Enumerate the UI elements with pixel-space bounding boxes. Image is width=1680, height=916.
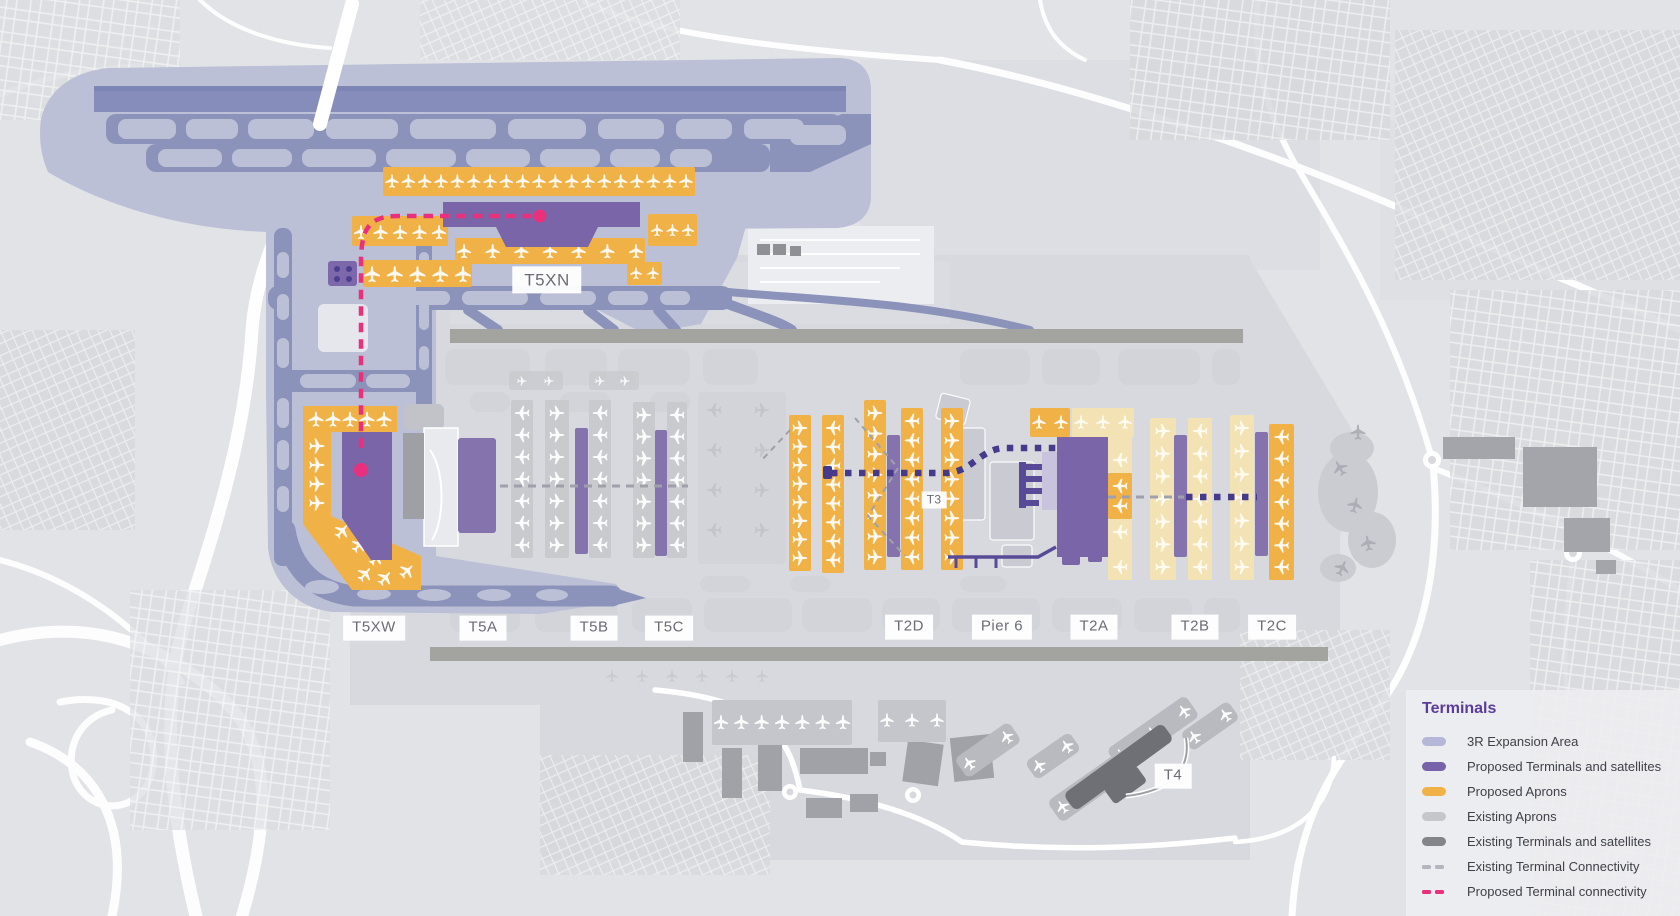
proposed-satellite-t5a bbox=[458, 438, 496, 533]
runway-south bbox=[430, 647, 1328, 661]
proposed-satellite-t2d bbox=[887, 435, 900, 557]
label-t2d: T2D bbox=[885, 615, 933, 640]
heathrow-expansion-map: T5XN T5XW T5A T5B T5C T2D Pier 6 T2A T2B… bbox=[0, 0, 1680, 916]
taxiway-island bbox=[802, 598, 872, 632]
label-t2c: T2C bbox=[1248, 615, 1296, 640]
label-pier6: Pier 6 bbox=[972, 615, 1032, 640]
legend-label: Proposed Terminals and satellites bbox=[1467, 759, 1661, 774]
label-t2a: T2A bbox=[1070, 615, 1117, 640]
proposed-apron bbox=[789, 415, 811, 571]
carpark-block bbox=[328, 261, 357, 286]
legend-label: Existing Aprons bbox=[1467, 809, 1557, 824]
legend-panel: Terminals 3R Expansion Area Proposed Ter… bbox=[1406, 690, 1680, 916]
existing-apron-faint bbox=[698, 392, 786, 564]
legend-title: Terminals bbox=[1422, 700, 1670, 718]
legend-swatch-existing-terminals bbox=[1422, 837, 1446, 846]
proposed-satellite-t5b bbox=[575, 428, 588, 554]
taxiway-island bbox=[700, 576, 750, 592]
legend-swatch-3r-expansion bbox=[1422, 737, 1446, 746]
label-t5b: T5B bbox=[570, 616, 617, 641]
legend-swatch-existing-connectivity bbox=[1422, 862, 1446, 871]
runway-north bbox=[450, 329, 1243, 343]
taxiway-island bbox=[704, 598, 792, 632]
taxiway-island bbox=[703, 349, 758, 385]
runway-3r-edge bbox=[94, 86, 846, 91]
taxiway-island bbox=[470, 392, 510, 412]
label-t5xn: T5XN bbox=[512, 266, 581, 293]
legend-swatch-proposed-connectivity bbox=[1422, 887, 1446, 896]
taxiway-island bbox=[960, 349, 1030, 385]
legend-item-existing-terminals: Existing Terminals and satellites bbox=[1422, 829, 1670, 854]
proposed-apron bbox=[864, 400, 886, 570]
label-t5a: T5A bbox=[459, 616, 506, 641]
proposed-terminal-t2a bbox=[1057, 437, 1108, 557]
legend-item-proposed-connectivity: Proposed Terminal connectivity bbox=[1422, 879, 1670, 904]
legend-swatch-existing-aprons bbox=[1422, 812, 1446, 821]
label-t5c: T5C bbox=[645, 616, 693, 641]
legend-swatch-proposed-terminals bbox=[1422, 762, 1446, 771]
label-t3: T3 bbox=[922, 492, 947, 509]
legend-label: Proposed Terminal connectivity bbox=[1467, 884, 1647, 899]
proposed-satellite-t5c bbox=[655, 430, 667, 556]
legend-label: Existing Terminals and satellites bbox=[1467, 834, 1651, 849]
taxiway-island bbox=[1212, 349, 1240, 385]
legend-label: Proposed Aprons bbox=[1467, 784, 1567, 799]
label-t5xw: T5XW bbox=[343, 616, 405, 641]
taxiway-island bbox=[1042, 349, 1100, 385]
proposed-apron bbox=[941, 408, 963, 570]
legend-item-proposed-terminals: Proposed Terminals and satellites bbox=[1422, 754, 1670, 779]
legend-item-3r-expansion: 3R Expansion Area bbox=[1422, 729, 1670, 754]
legend-item-existing-aprons: Existing Aprons bbox=[1422, 804, 1670, 829]
taxiway-island bbox=[790, 576, 830, 592]
proposed-apron bbox=[901, 408, 923, 570]
legend-item-proposed-aprons: Proposed Aprons bbox=[1422, 779, 1670, 804]
taxiway-island bbox=[960, 576, 1006, 592]
proposed-apron bbox=[822, 415, 844, 573]
label-t2b: T2B bbox=[1171, 615, 1218, 640]
legend-swatch-proposed-aprons bbox=[1422, 787, 1446, 796]
legend-item-existing-connectivity: Existing Terminal Connectivity bbox=[1422, 854, 1670, 879]
taxiway-island bbox=[1118, 349, 1200, 385]
label-t4: T4 bbox=[1155, 764, 1192, 789]
legend-label: Existing Terminal Connectivity bbox=[1467, 859, 1639, 874]
legend-label: 3R Expansion Area bbox=[1467, 734, 1578, 749]
